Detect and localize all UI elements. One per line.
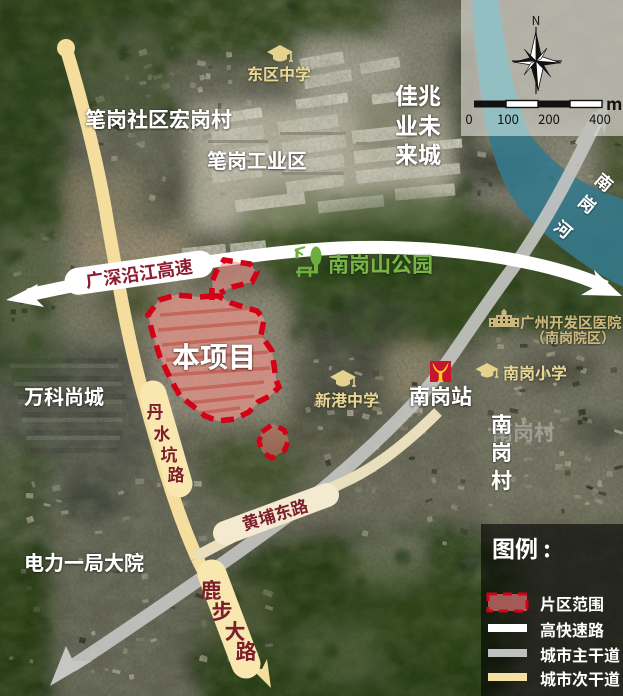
svg-text:佳兆: 佳兆 bbox=[395, 77, 441, 111]
svg-text:万科尚城: 万科尚城 bbox=[24, 381, 104, 410]
svg-text:笔岗工业区: 笔岗工业区 bbox=[207, 145, 307, 174]
svg-text:高快速路: 高快速路 bbox=[540, 617, 604, 641]
svg-text:N: N bbox=[532, 12, 541, 29]
svg-text:南: 南 bbox=[491, 409, 512, 439]
svg-text:200: 200 bbox=[538, 109, 560, 128]
svg-text:新港中学: 新港中学 bbox=[315, 387, 379, 411]
svg-text:路: 路 bbox=[236, 636, 257, 666]
svg-text:来城: 来城 bbox=[395, 136, 441, 170]
svg-text:南岗小学: 南岗小学 bbox=[503, 360, 567, 384]
svg-text:0: 0 bbox=[465, 109, 472, 128]
svg-text:南岗站: 南岗站 bbox=[409, 381, 472, 411]
svg-text:笔岗社区宏岗村: 笔岗社区宏岗村 bbox=[85, 104, 232, 134]
svg-text:片区范围: 片区范围 bbox=[540, 591, 604, 615]
svg-text:城市次干道: 城市次干道 bbox=[540, 666, 620, 690]
svg-text:m: m bbox=[606, 90, 622, 115]
svg-text:东区中学: 东区中学 bbox=[247, 61, 311, 85]
svg-text:城市主干道: 城市主干道 bbox=[540, 642, 620, 666]
svg-text:图例 :: 图例 : bbox=[492, 530, 551, 564]
svg-text:本项目: 本项目 bbox=[172, 336, 256, 376]
svg-text:电力一局大院: 电力一局大院 bbox=[24, 547, 144, 576]
svg-text:村: 村 bbox=[491, 465, 512, 495]
svg-text:路: 路 bbox=[168, 461, 185, 486]
svg-text:100: 100 bbox=[497, 109, 519, 128]
svg-text:岗: 岗 bbox=[491, 437, 512, 467]
svg-text:（南岗院区）: （南岗院区） bbox=[531, 328, 615, 348]
svg-text:南岗山公园: 南岗山公园 bbox=[328, 249, 433, 279]
